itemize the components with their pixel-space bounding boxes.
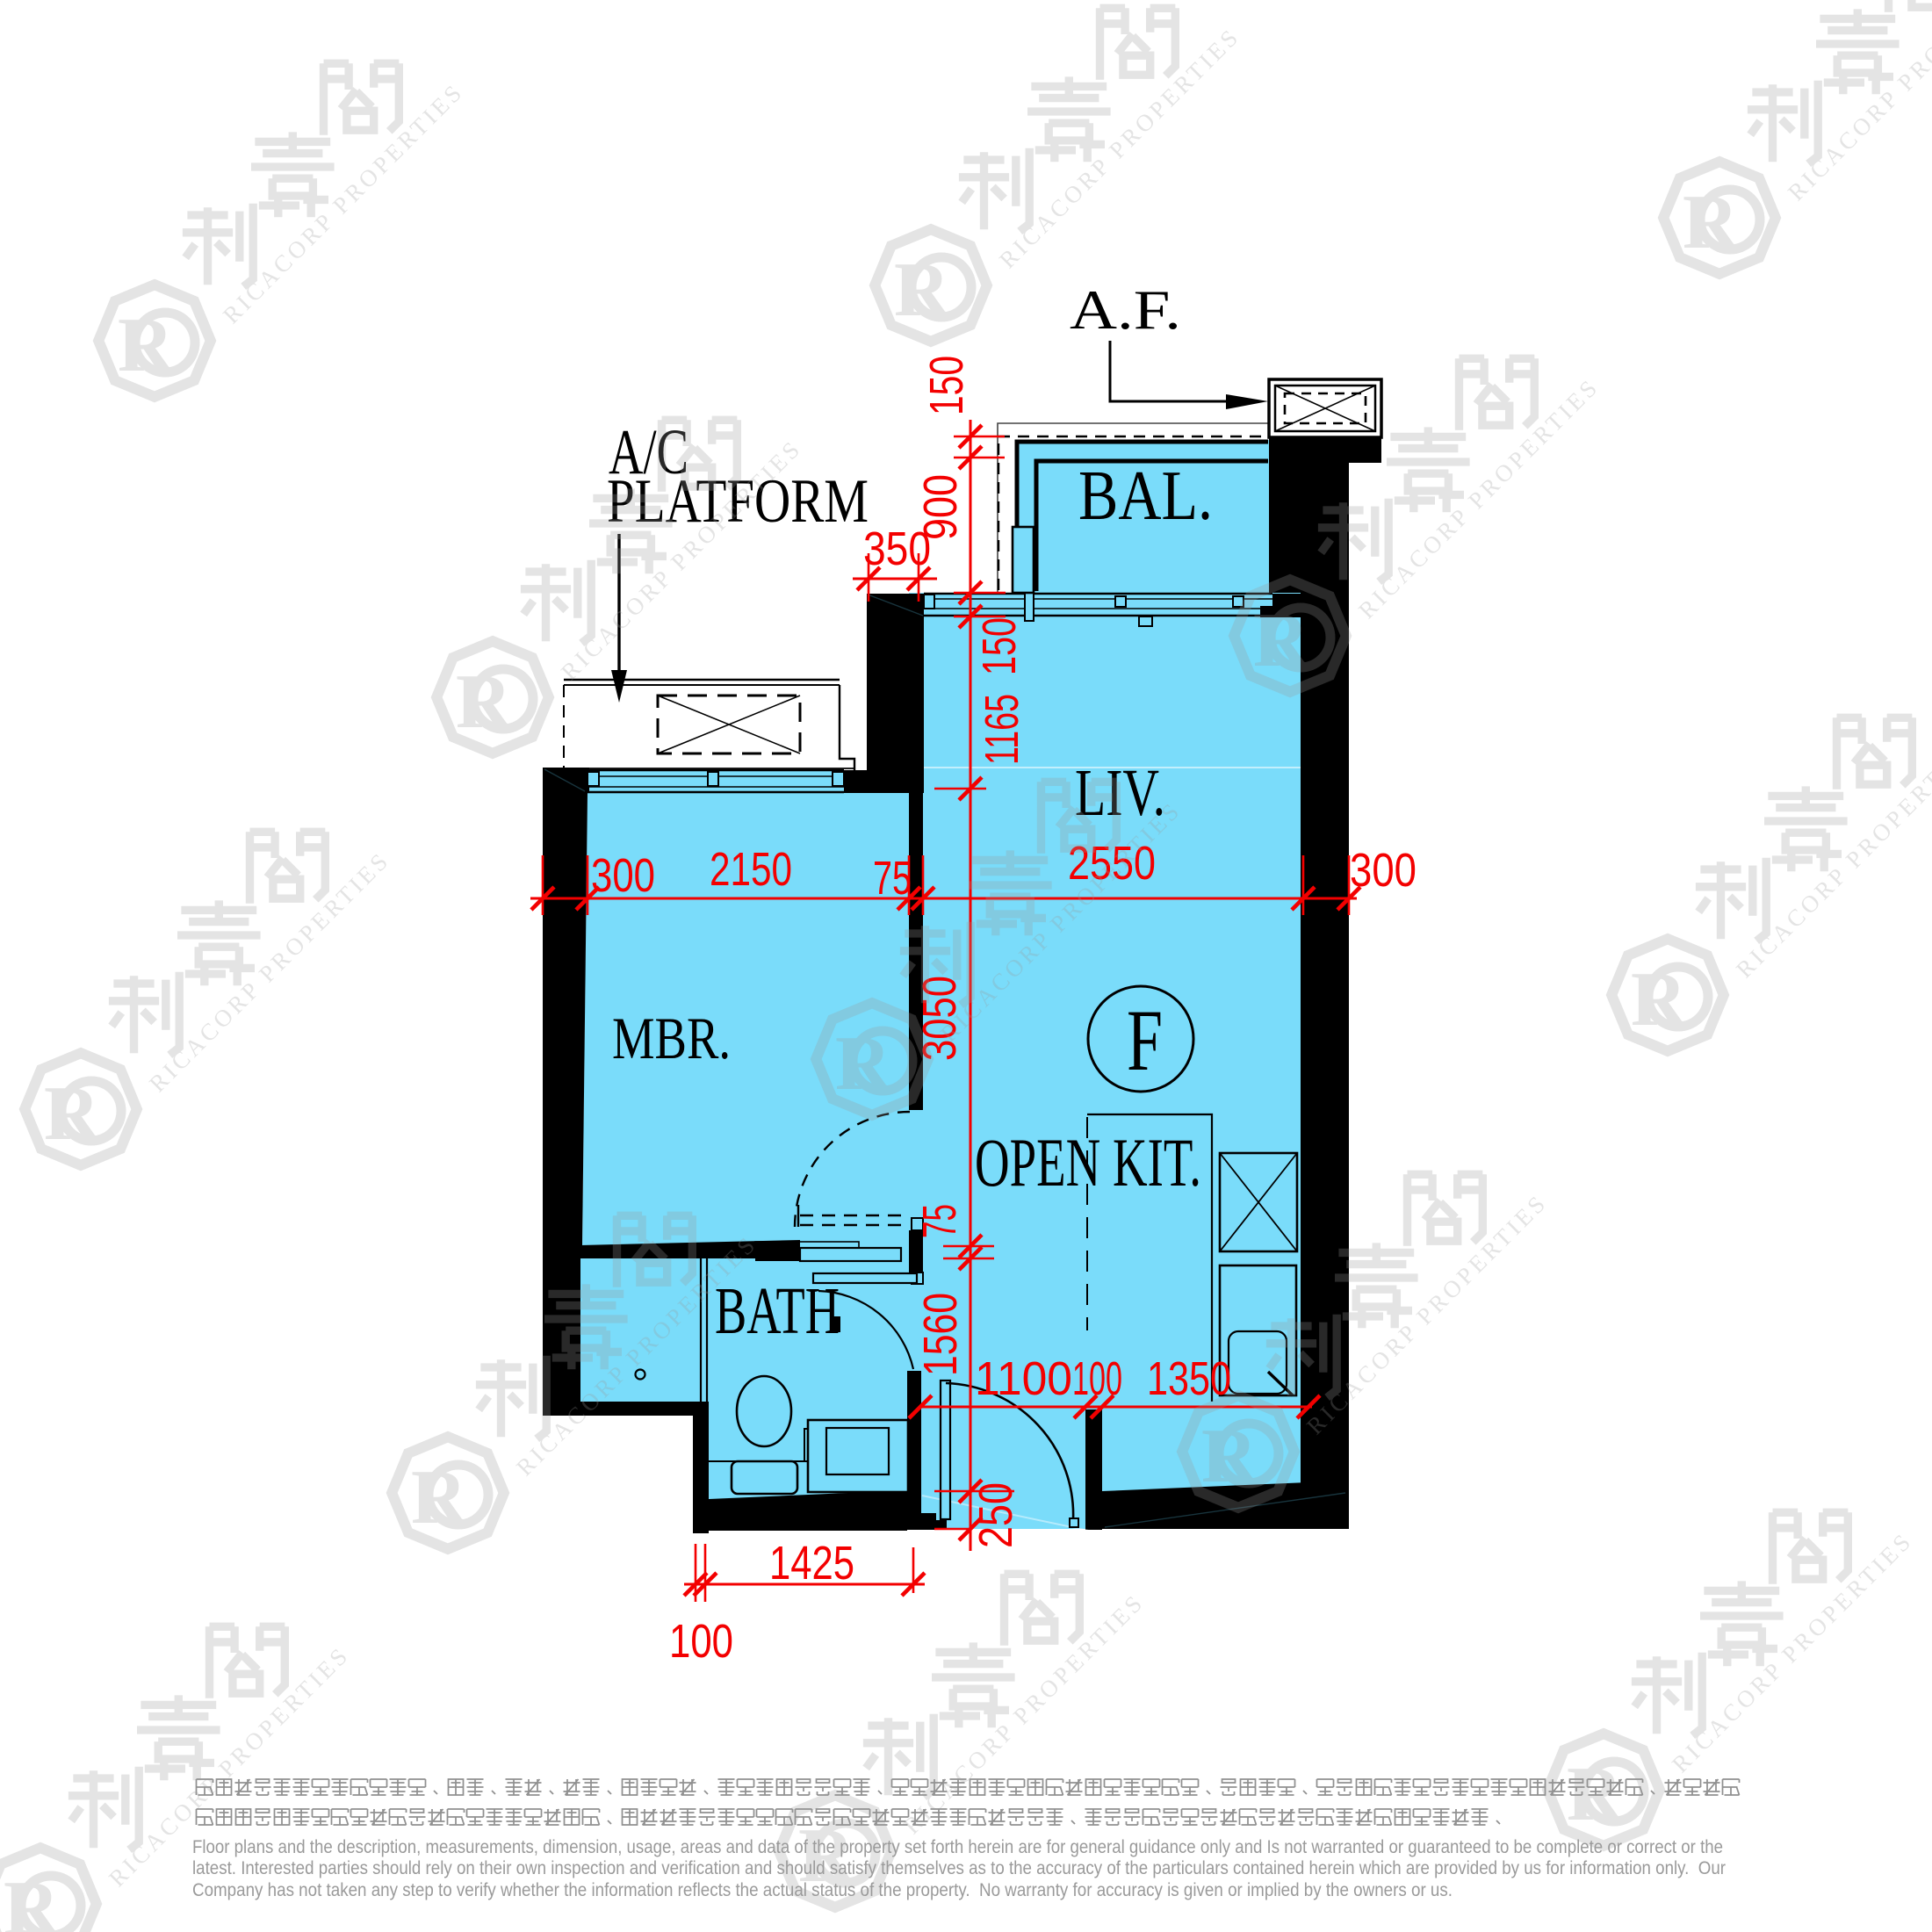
svg-text:1560: 1560 (914, 1293, 967, 1376)
svg-text:A.F.: A.F. (1070, 278, 1181, 341)
svg-text:300: 300 (1350, 844, 1417, 897)
svg-text:OPEN KIT.: OPEN KIT. (975, 1124, 1201, 1200)
svg-text:75: 75 (873, 852, 912, 905)
svg-text:MBR.: MBR. (612, 1005, 731, 1071)
svg-text:latest. Interested parties sho: latest. Interested parties should rely o… (192, 1858, 1726, 1878)
svg-text:75: 75 (913, 1204, 966, 1238)
svg-text:2150: 2150 (710, 843, 792, 896)
svg-text:1100: 1100 (975, 1352, 1072, 1405)
svg-text:BATH: BATH (715, 1274, 840, 1348)
svg-text:F: F (1127, 991, 1163, 1089)
svg-text:150: 150 (973, 617, 1026, 675)
svg-text:250: 250 (970, 1482, 1022, 1548)
svg-text:300: 300 (591, 849, 655, 902)
svg-text:Floor plans and the descriptio: Floor plans and the description, measure… (192, 1837, 1723, 1857)
svg-text:1425: 1425 (769, 1537, 854, 1590)
svg-text:BAL.: BAL. (1078, 458, 1213, 535)
svg-text:150: 150 (920, 356, 973, 415)
svg-text:100: 100 (1072, 1352, 1122, 1405)
svg-text:100: 100 (669, 1615, 733, 1668)
svg-text:900: 900 (914, 474, 967, 540)
svg-text:1350: 1350 (1147, 1352, 1231, 1405)
svg-text:1165: 1165 (976, 694, 1028, 765)
